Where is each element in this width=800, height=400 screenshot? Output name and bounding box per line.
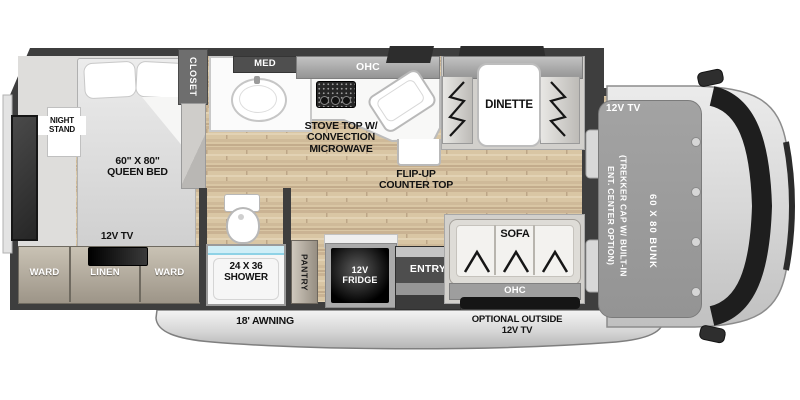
- optional-outside-tv-label: OPTIONAL OUTSIDE 12V TV: [447, 314, 587, 337]
- rv-floor-plan: 60" X 80" QUEEN BED NIGHT STAND WARD LIN…: [0, 0, 800, 400]
- bunk-hinge: [691, 137, 701, 147]
- pantry-label: PANTRY: [300, 254, 310, 291]
- shower-label: 24 X 36 SHOWER: [208, 262, 284, 284]
- bedroom-window: [11, 115, 38, 241]
- bench-fold-marks: [541, 77, 577, 141]
- sofa-fold-marks: [455, 246, 575, 276]
- slide-floor-mat: [460, 297, 580, 309]
- kitchen-ohc-label: OHC: [356, 62, 380, 73]
- closet-door-panel: [181, 103, 206, 189]
- stove-top: [316, 81, 356, 108]
- slide-roof-vent-left: [386, 46, 434, 63]
- bedroom-tv: [88, 247, 148, 266]
- stove-line2: CONVECTION: [291, 132, 391, 143]
- sofa-label: SOFA: [480, 229, 550, 241]
- linen-label: LINEN: [71, 268, 139, 278]
- med-label: MED: [254, 59, 276, 69]
- shower-water-edge: [208, 246, 284, 255]
- night-stand-label: NIGHT STAND: [38, 116, 86, 135]
- med-cabinet: MED: [233, 56, 297, 73]
- sofa-ohc-label: OHC: [504, 286, 526, 296]
- flip-line2: COUNTER TOP: [376, 180, 456, 191]
- bunk-hinge: [691, 187, 701, 197]
- ward-right-label: WARD: [141, 268, 198, 278]
- bed-type: QUEEN BED: [85, 167, 190, 178]
- awning-label: 18' AWNING: [215, 316, 315, 327]
- bunk-hinge: [691, 237, 701, 247]
- dinette-table: DINETTE: [477, 63, 541, 147]
- dinette-bench-right: [540, 76, 580, 144]
- trekker-line1: (TREKKER CAP W/ BUILT-IN: [617, 117, 630, 315]
- shower-word: SHOWER: [208, 273, 284, 284]
- optional-tv-line1: OPTIONAL OUTSIDE: [447, 314, 587, 325]
- toilet-flush: [238, 214, 244, 220]
- toilet-bowl: [226, 207, 260, 244]
- fridge: 12V FRIDGE: [331, 248, 389, 303]
- sink-faucet: [254, 76, 260, 84]
- shower: 24 X 36 SHOWER: [206, 244, 286, 306]
- bedroom-tv-label: 12V TV: [80, 232, 154, 243]
- optional-tv-line2: 12V TV: [447, 325, 587, 336]
- closet-label: CLOSET: [188, 57, 198, 97]
- bunk-hinge: [691, 287, 701, 297]
- burner: [331, 96, 340, 105]
- fridge-line2: FRIDGE: [342, 276, 377, 286]
- pantry: PANTRY: [291, 240, 318, 304]
- bunk-panel: 12V TV (TREKKER CAP W/ BUILT-IN ENT. CEN…: [598, 100, 702, 318]
- flip-up-label: FLIP-UP COUNTER TOP: [376, 169, 456, 192]
- side-mirror-top: [697, 68, 724, 87]
- sofa: SOFA: [449, 219, 581, 285]
- stove-line3: MICROWAVE: [291, 144, 391, 155]
- burner: [342, 96, 351, 105]
- bench-fold-marks: [443, 77, 470, 141]
- fridge-label: 12V FRIDGE: [342, 266, 377, 285]
- flip-up-counter: [397, 139, 441, 166]
- dinette-bench-left: [442, 76, 473, 144]
- stove-label: STOVE TOP W/ CONVECTION MICROWAVE: [291, 121, 391, 155]
- entry-label: ENTRY: [410, 264, 446, 275]
- side-mirror-bottom: [699, 325, 726, 344]
- vanity-sink-inner: [239, 85, 277, 113]
- ward-left-label: WARD: [20, 268, 69, 278]
- bunk-label: 60 X 80 BUNK: [647, 146, 658, 316]
- trekker-cap-label: (TREKKER CAP W/ BUILT-IN ENT. CENTER OPT…: [604, 117, 630, 315]
- burner: [320, 96, 329, 105]
- bed-label: 60" X 80" QUEEN BED: [85, 156, 190, 179]
- dinette-label: DINETTE: [485, 99, 533, 111]
- trekker-line2: ENT. CENTER OPTION): [604, 117, 617, 315]
- closet: CLOSET: [178, 49, 208, 105]
- pillow-left: [83, 61, 137, 100]
- cab-tv-label: 12V TV: [606, 104, 654, 115]
